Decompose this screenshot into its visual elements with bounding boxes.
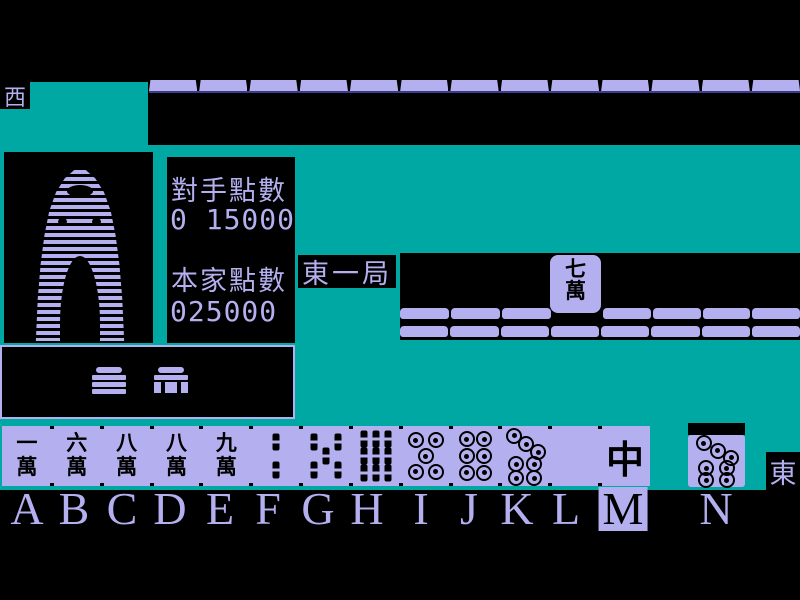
hand-tile-F-2-sou[interactable] [251, 426, 301, 486]
tile-select-letter-J[interactable]: J [460, 487, 478, 531]
hand-tile-J-6-pin[interactable] [451, 426, 501, 486]
sou-pip [311, 462, 318, 479]
wall-tile-back [551, 80, 599, 91]
wall-tile-back [501, 326, 549, 337]
self-score-label: 本家點數 [171, 259, 287, 298]
sou-pip [372, 448, 379, 465]
sou-pip [360, 448, 367, 465]
wall-tile-back [300, 80, 348, 91]
tile-select-letter-G[interactable]: G [301, 487, 334, 531]
wall-tile-back [752, 326, 800, 337]
hand-tile-K-7-pin[interactable] [500, 426, 550, 486]
sou-pip [311, 433, 318, 450]
tile-select-letter-A[interactable]: A [10, 487, 43, 531]
hand-tile-G-5-sou[interactable] [301, 426, 351, 486]
wall-tile-back [400, 308, 449, 319]
opponent-wall-row [149, 80, 800, 93]
figure-arch [60, 256, 100, 342]
sou-pip [372, 431, 379, 448]
tile-select-letter-K[interactable]: K [500, 487, 533, 531]
wall-tile-back [601, 80, 649, 91]
wall-tile-back [653, 308, 701, 319]
sou-pip [360, 464, 367, 481]
wall-tile-back [601, 326, 649, 337]
hand-tile-E-9-man[interactable]: 九萬 [201, 426, 251, 486]
self-score-value: 025000 [170, 295, 277, 328]
sou-pip [384, 431, 391, 448]
east-wind-indicator: 東 [766, 452, 800, 490]
tile-face-8-man: 八萬 [152, 426, 202, 486]
figure-cap [67, 185, 94, 197]
west-wind-label: 西 [4, 80, 26, 112]
pin-pip [428, 432, 444, 448]
figure-eye-right [92, 218, 101, 225]
tile-select-letter-C[interactable]: C [107, 487, 138, 531]
wall-tile-back [752, 80, 800, 91]
pin-pip [428, 464, 444, 480]
hand-tile-C-8-man[interactable]: 八萬 [102, 426, 152, 486]
score-panel: 對手點數 0 15000 本家點數 025000 [167, 157, 295, 343]
discard-tile-bottom-char: 萬 [565, 281, 586, 303]
sou-pip [360, 431, 367, 448]
discard-wall-row1-right [603, 308, 800, 319]
tile-select-letter-L[interactable]: L [552, 487, 580, 531]
tile-face-1-man: 一萬 [2, 426, 52, 486]
discard-wall-row2 [400, 326, 800, 337]
tile-face-8-man: 八萬 [102, 426, 152, 486]
west-wind-indicator: 西 [0, 82, 30, 109]
opponent-figure-panel [4, 152, 153, 343]
figure-eye-left [58, 218, 67, 225]
pin-pip [408, 464, 424, 480]
tile-face-9-man: 九萬 [201, 426, 251, 486]
game-screen: 西 對手點數 0 15000 本家點數 025000 東一局 七 萬 [0, 0, 800, 600]
hand-tile-B-6-man[interactable]: 六萬 [52, 426, 102, 486]
tile-face-red-dragon: 中 [600, 426, 650, 486]
hand-tile-D-8-man[interactable]: 八萬 [152, 426, 202, 486]
tile-stack-icon [92, 367, 126, 394]
tile-select-letter-F[interactable]: F [255, 487, 281, 531]
sou-pip [334, 462, 341, 479]
hand-tile-M-red-dragon[interactable]: 中 [600, 426, 650, 486]
east-wind-label: 東 [770, 452, 797, 491]
pin-pip [459, 431, 475, 447]
wall-tile-back [451, 308, 500, 319]
wall-tile-back [350, 80, 398, 91]
sou-pip [273, 433, 280, 450]
sou-pip [273, 462, 280, 479]
wall-tile-back [249, 80, 297, 91]
drawn-tile-shadow [688, 423, 745, 435]
sou-pip [322, 448, 329, 465]
player-hand: 一萬六萬八萬八萬九萬中 [2, 426, 650, 486]
wall-tile-back [603, 308, 651, 319]
wall-tile-back [651, 326, 699, 337]
sou-pip [334, 433, 341, 450]
wall-tile-back [702, 326, 750, 337]
tile-face-6-man: 六萬 [52, 426, 102, 486]
opponent-score-value: 0 15000 [170, 203, 295, 236]
opponent-discarded-tile-7man: 七 萬 [550, 255, 601, 313]
sou-pip [372, 464, 379, 481]
wall-tile-back [400, 326, 448, 337]
hand-tile-L-white-dragon[interactable] [550, 426, 600, 486]
round-indicator: 東一局 [298, 255, 396, 288]
pin-pip [459, 465, 475, 481]
opponent-discard-area: 七 萬 [400, 253, 800, 340]
tile-select-letter-B[interactable]: B [59, 487, 90, 531]
pin-pip [418, 448, 434, 464]
discard-wall-row1-left [400, 308, 551, 319]
wall-tile-back [450, 326, 498, 337]
round-label: 東一局 [302, 252, 392, 291]
discard-tile-top-char: 七 [565, 259, 586, 281]
wall-tile-back [501, 80, 549, 91]
wall-tile-back [551, 326, 599, 337]
tile-select-letter-N[interactable]: N [699, 487, 732, 531]
hand-tile-I-5-pin[interactable] [401, 426, 451, 486]
meld-panel [0, 345, 295, 419]
opponent-figure [32, 170, 128, 341]
pin-pip [476, 465, 492, 481]
tile-select-letter-E[interactable]: E [206, 487, 234, 531]
wall-tile-back [651, 80, 699, 91]
wall-tile-back [450, 80, 498, 91]
tile-select-letter-M[interactable]: M [599, 487, 648, 531]
pin-pip [476, 448, 492, 464]
pin-pip [408, 432, 424, 448]
tile-select-letter-D[interactable]: D [153, 487, 186, 531]
drawn-tile[interactable] [688, 435, 745, 487]
tile-table-icon [154, 367, 188, 393]
tile-select-letter-I[interactable]: I [413, 487, 428, 531]
wall-tile-back [502, 308, 551, 319]
wall-tile-back [149, 80, 197, 91]
hand-tile-H-9-sou[interactable] [351, 426, 401, 486]
sou-pip [384, 464, 391, 481]
wall-tile-back [752, 308, 800, 319]
hand-tile-A-1-man[interactable]: 一萬 [2, 426, 52, 486]
wall-tile-back [703, 308, 751, 319]
wall-tile-back [400, 80, 448, 91]
tile-select-letter-H[interactable]: H [350, 487, 383, 531]
wall-tile-back [199, 80, 247, 91]
wall-tile-back [702, 80, 750, 91]
sou-pip [384, 448, 391, 465]
pin-pip [476, 431, 492, 447]
pin-pip [459, 448, 475, 464]
